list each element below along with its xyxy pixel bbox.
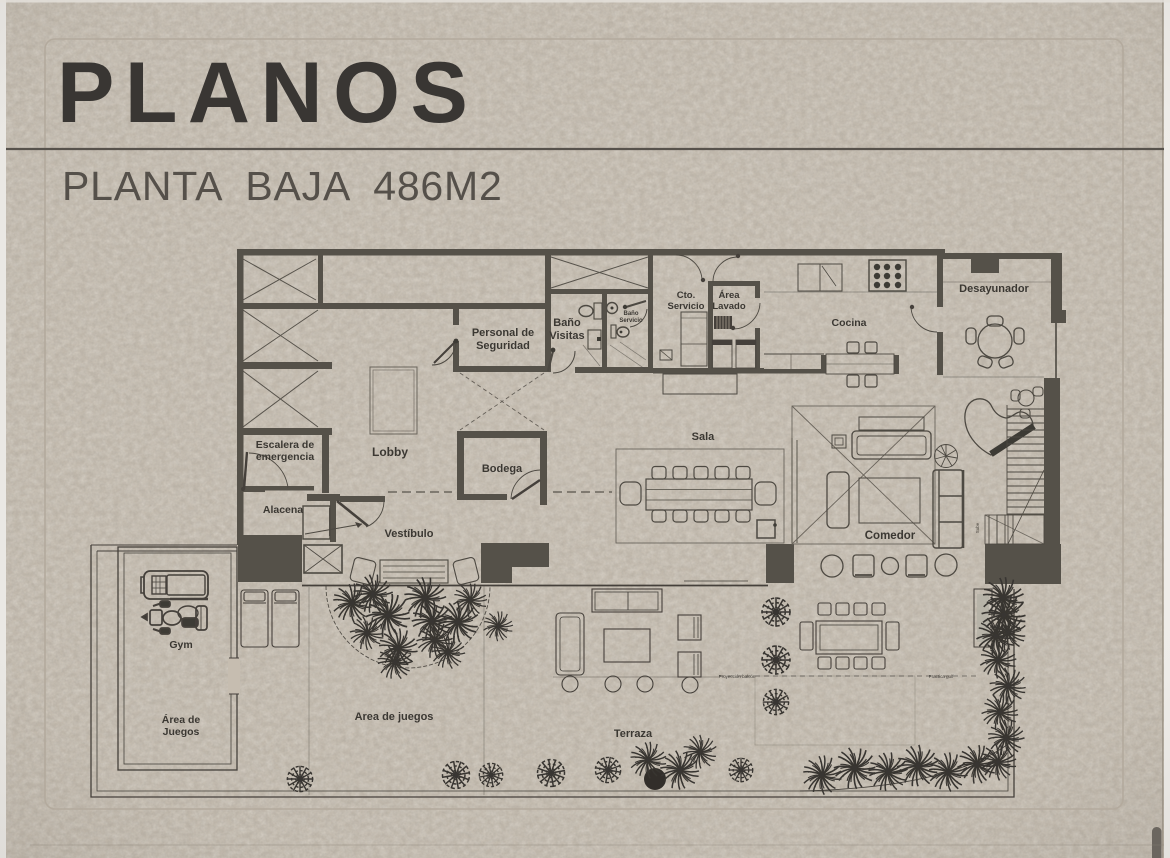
svg-text:Visitas: Visitas — [549, 330, 584, 342]
svg-text:Sube: Sube — [975, 522, 980, 533]
svg-text:Area de juegos: Area de juegos — [355, 711, 434, 723]
svg-text:Bodega: Bodega — [482, 463, 523, 475]
svg-text:Lavado: Lavado — [712, 301, 745, 312]
svg-text:Sala: Sala — [692, 431, 716, 443]
svg-text:PLANOS: PLANOS — [57, 45, 478, 141]
svg-text:Escalera de: Escalera de — [256, 439, 315, 451]
svg-text:Terraza: Terraza — [614, 728, 653, 740]
svg-text:Cocina: Cocina — [831, 317, 866, 329]
svg-text:Practica golf: Practica golf — [929, 674, 955, 679]
svg-text:emergencia: emergencia — [256, 451, 315, 463]
svg-text:Alacena: Alacena — [263, 504, 303, 516]
svg-text:Proyección balcón: Proyección balcón — [719, 674, 756, 679]
svg-text:Desayunador: Desayunador — [959, 283, 1029, 295]
svg-text:PLANTA BAJA 486M2: PLANTA BAJA 486M2 — [62, 163, 503, 209]
svg-text:Comedor: Comedor — [865, 530, 916, 542]
svg-text:Área de: Área de — [162, 713, 201, 726]
svg-text:Personal de: Personal de — [472, 327, 534, 339]
svg-text:Seguridad: Seguridad — [476, 340, 530, 352]
svg-text:Área: Área — [718, 290, 740, 301]
svg-text:Servicio: Servicio — [619, 318, 643, 324]
svg-text:Baño: Baño — [624, 311, 639, 317]
svg-text:Lobby: Lobby — [372, 445, 408, 459]
svg-text:Gym: Gym — [169, 639, 192, 651]
svg-text:Servicio: Servicio — [668, 301, 705, 312]
svg-text:Vestíbulo: Vestíbulo — [385, 528, 434, 540]
svg-text:Juegos: Juegos — [163, 726, 200, 738]
svg-text:Baño: Baño — [553, 317, 581, 329]
svg-text:Cto.: Cto. — [677, 290, 695, 301]
